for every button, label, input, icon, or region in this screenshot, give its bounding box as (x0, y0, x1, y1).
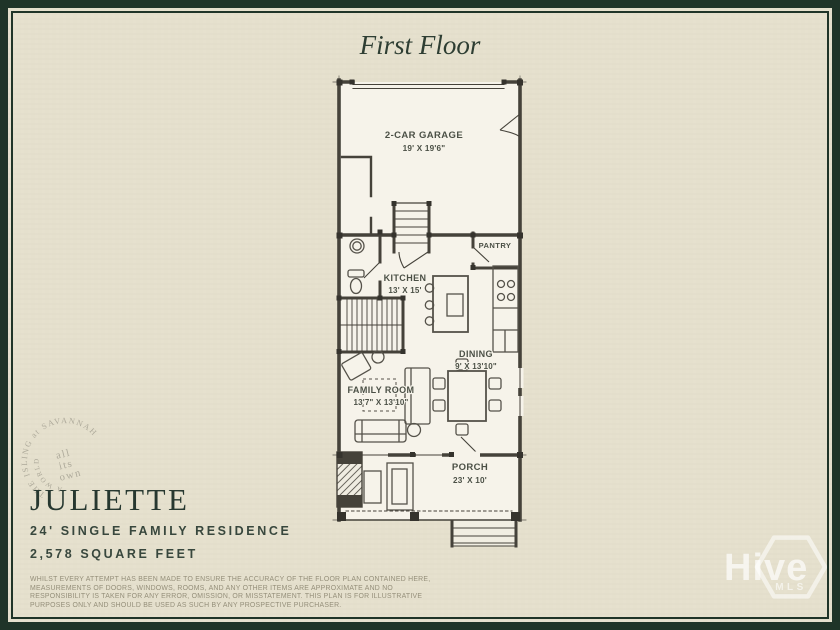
plan-square-feet: 2,578 SQUARE FEET (30, 547, 291, 561)
hive-watermark: Hive MLS (712, 522, 837, 622)
room-dims-family: 13'7" X 13'10" (353, 398, 408, 407)
room-label-dining: DINING (459, 349, 493, 359)
page-title: First Floor (310, 30, 530, 61)
room-label-kitchen: KITCHEN (384, 273, 427, 283)
room-dims-garage: 19' X 19'6" (403, 144, 446, 153)
room-label-garage: 2-CAR GARAGE (385, 130, 463, 141)
room-label-pantry: PANTRY (479, 241, 512, 250)
disclaimer-text: WHILST EVERY ATTEMPT HAS BEEN MADE TO EN… (30, 576, 442, 610)
plan-info-block: JULIETTE 24' SINGLE FAMILY RESIDENCE 2,5… (30, 484, 291, 561)
room-dims-porch: 23' X 10' (453, 476, 487, 485)
room-label-porch: PORCH (452, 462, 488, 473)
room-dims-dining: 9' X 13'10" (455, 362, 497, 371)
plan-name: JULIETTE (30, 484, 291, 515)
chimney-hatch (337, 452, 362, 507)
room-dims-kitchen: 13' X 15' (388, 286, 421, 295)
hive-mls-text: MLS (775, 582, 807, 593)
plan-residence-type: 24' SINGLE FAMILY RESIDENCE (30, 524, 291, 538)
room-label-family: FAMILY ROOM (348, 385, 415, 395)
